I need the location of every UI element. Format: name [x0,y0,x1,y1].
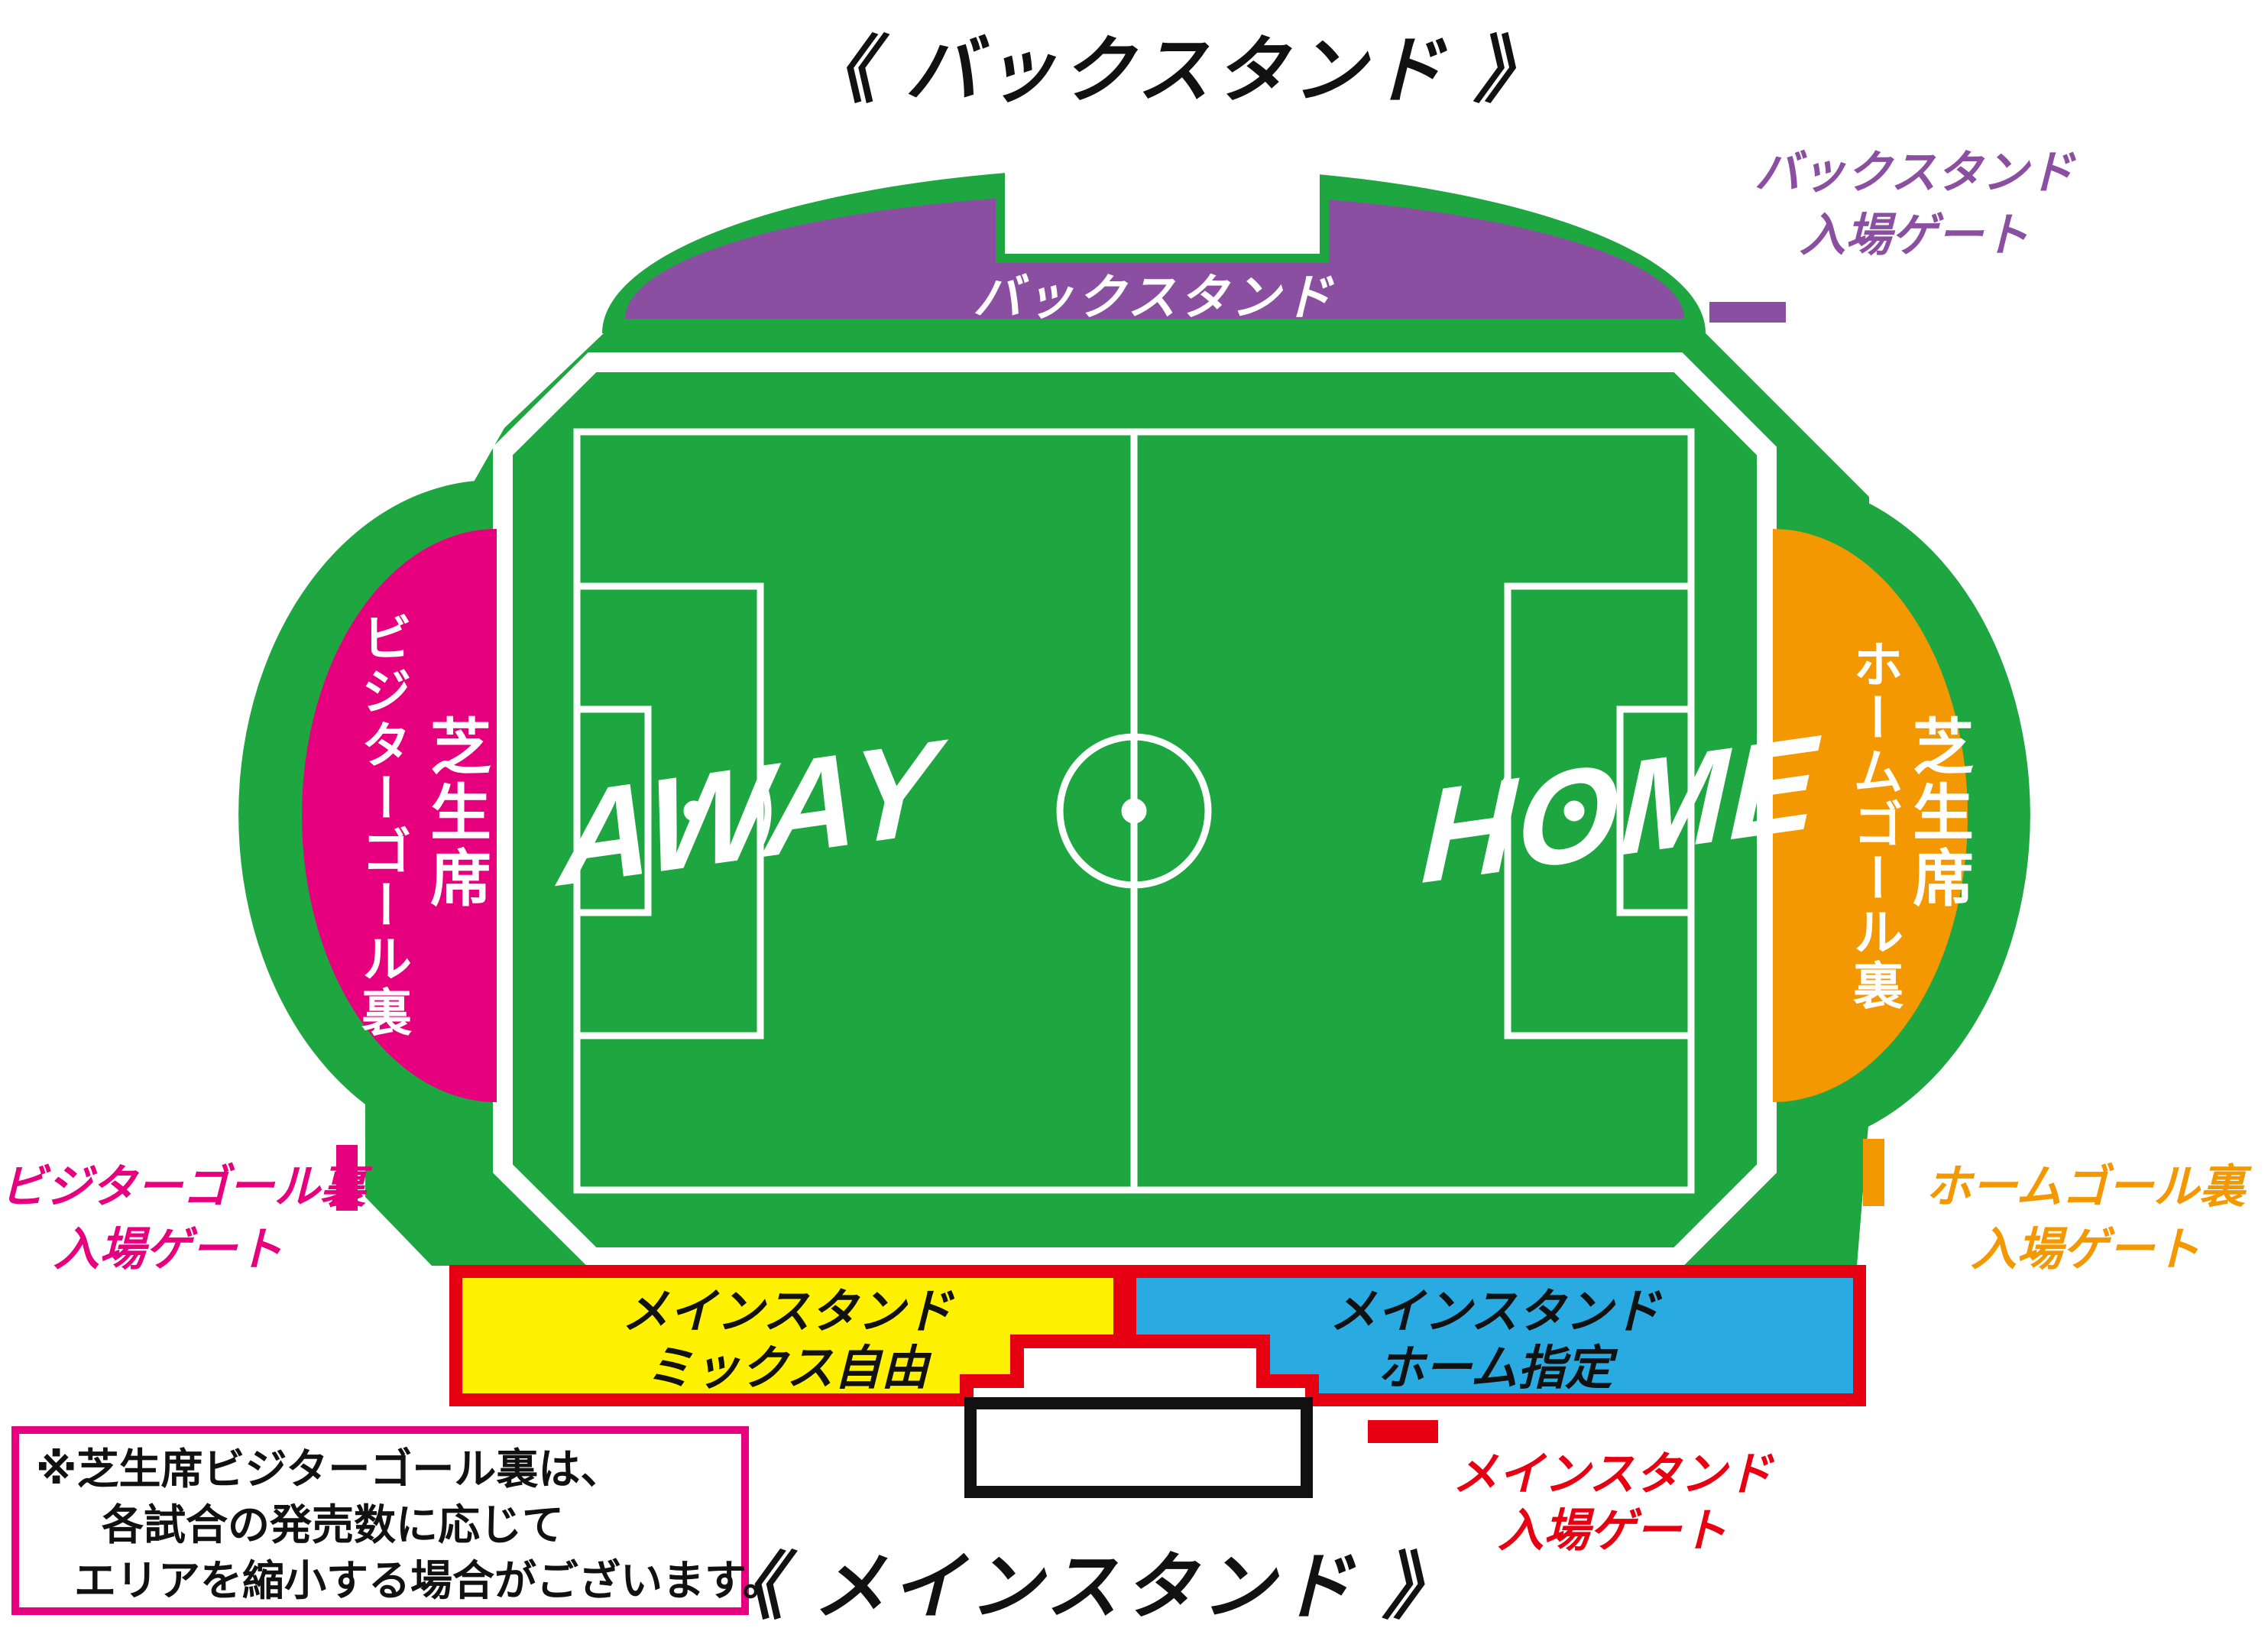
stadium-seating-map: 《 バックスタンド 》 [0,0,2268,1628]
main-gate-label-line1: メインスタンド [1383,1446,1842,1503]
home-gate-label-line1: ホームゴール裏 [1903,1156,2268,1218]
visitor-lawn-label-secondary: ビジターゴール裏 [358,611,408,1039]
visitor-lawn-label-primary: 芝生席 [425,715,486,912]
back-gate-marker [1709,302,1786,323]
back-gate-label: バックスタンド 入場ゲート [1700,141,2128,267]
visitor-gate-label-line2: 入場ゲート [0,1218,336,1281]
visitor-gate-label-line1: ビジターゴール裏 [0,1156,336,1218]
home-gate-label: ホームゴール裏 入場ゲート [1903,1156,2268,1281]
scoreboard-notch-edge-left [996,183,1005,263]
main-stand-mix-label-line2: ミックス自由 [470,1341,1104,1397]
main-gate-marker [1368,1420,1438,1443]
home-lawn-label-secondary: ホームゴール裏 [1849,638,1900,1013]
main-stand-mix-label-line1: メインスタンド [470,1284,1104,1341]
entrance-building-box [964,1397,1313,1498]
scoreboard-notch-edge-right [1320,183,1329,263]
scoreboard-notch [1005,134,1320,254]
center-spot [1125,802,1143,820]
main-stand-home-label-line2: ホーム指定 [1146,1341,1843,1397]
main-stand-title: 《 メインスタンド 》 [688,1527,1482,1628]
back-stand-section-label: バックスタンド [902,258,1406,329]
visitor-gate-label: ビジターゴール裏 入場ゲート [0,1156,336,1281]
home-gate-label-line2: 入場ゲート [1903,1218,2268,1281]
note-line3: エリアを縮小する場合がございます。 [19,1553,741,1609]
back-gate-label-line1: バックスタンド [1700,141,2128,204]
note-box: ※芝生席ビジターゴール裏は、 各試合の発売数に応じて エリアを縮小する場合がござ… [11,1426,749,1615]
note-line1: ※芝生席ビジターゴール裏は、 [19,1434,741,1497]
back-gate-label-line2: 入場ゲート [1700,204,2128,267]
home-gate-marker [1863,1139,1884,1206]
note-line2: 各試合の発売数に応じて [19,1497,741,1553]
main-stand-mix-label: メインスタンド ミックス自由 [470,1284,1104,1397]
main-stand-home-label: メインスタンド ホーム指定 [1146,1284,1843,1397]
home-lawn-label-primary: 芝生席 [1907,715,1968,912]
main-stand-home-label-line1: メインスタンド [1146,1284,1843,1341]
